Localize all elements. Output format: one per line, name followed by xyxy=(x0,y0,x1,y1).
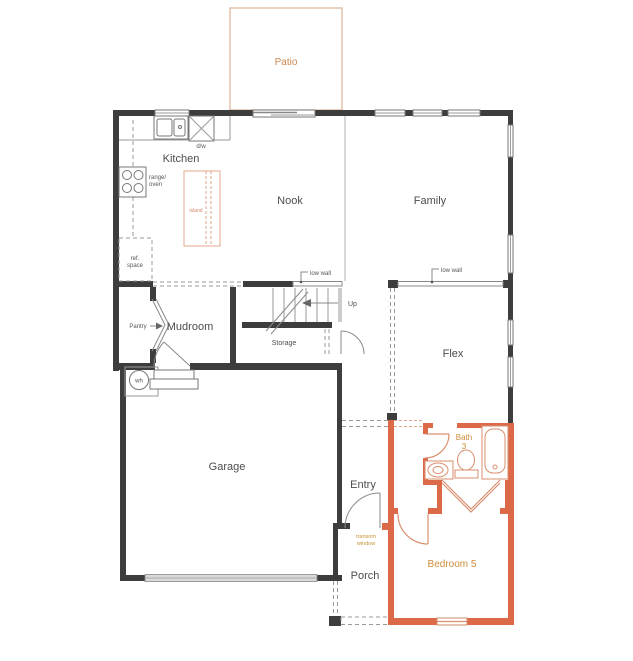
room-label-flex: Flex xyxy=(443,348,464,360)
walls xyxy=(113,110,513,626)
room-label-kitchen: Kitchen xyxy=(163,153,200,165)
label-transom-line1: transom xyxy=(356,534,376,540)
bath-door xyxy=(425,434,449,458)
label-low-wall-stairs: low wall xyxy=(310,271,331,277)
range-icon xyxy=(119,167,146,197)
room-label-patio: Patio xyxy=(275,57,298,68)
room-label-bath: Bath xyxy=(456,433,472,442)
label-ref-line1: ref. xyxy=(131,256,140,262)
closet-doors xyxy=(442,480,500,512)
label-low-wall-family: low wall xyxy=(441,268,462,274)
room-label-storage: Storage xyxy=(272,340,297,347)
bedroom-door xyxy=(398,514,428,544)
label-up: Up xyxy=(348,301,357,308)
room-label-porch: Porch xyxy=(351,570,380,582)
sink-icon xyxy=(154,116,188,139)
label-island: island xyxy=(189,208,202,214)
room-label-nook: Nook xyxy=(277,195,303,207)
storage-door xyxy=(341,331,364,354)
label-range-line2: oven xyxy=(149,182,162,188)
room-label-mudroom: Mudroom xyxy=(167,321,213,333)
garage-door xyxy=(145,575,317,582)
room-label-bedroom5: Bedroom 5 xyxy=(428,559,477,570)
label-ref-line2: space xyxy=(127,263,144,269)
sliding-door xyxy=(253,110,315,117)
room-label-garage: Garage xyxy=(209,461,246,473)
label-water-heater: wh xyxy=(134,379,143,385)
floor-plan-page: Patio Kitchen Nook Family Pantry Mudroom… xyxy=(0,0,633,661)
dishwasher-icon xyxy=(189,116,214,141)
room-label-bath-number: 3 xyxy=(462,442,467,451)
garage-steps xyxy=(150,370,198,389)
label-dishwasher: d/w xyxy=(196,144,206,150)
entry-door xyxy=(345,493,380,528)
low-walls xyxy=(293,282,503,287)
room-label-pantry: Pantry xyxy=(129,324,146,330)
bathtub-icon xyxy=(482,426,508,479)
room-label-family: Family xyxy=(414,195,447,207)
room-label-entry: Entry xyxy=(350,479,376,491)
vanity-sink-icon xyxy=(425,461,453,479)
floor-plan: Patio Kitchen Nook Family Pantry Mudroom… xyxy=(0,0,633,661)
label-range-line1: range/ xyxy=(149,175,166,181)
toilet-icon xyxy=(455,450,478,478)
label-transom-line2: window xyxy=(356,541,375,547)
mudroom-garage-door xyxy=(154,342,190,366)
